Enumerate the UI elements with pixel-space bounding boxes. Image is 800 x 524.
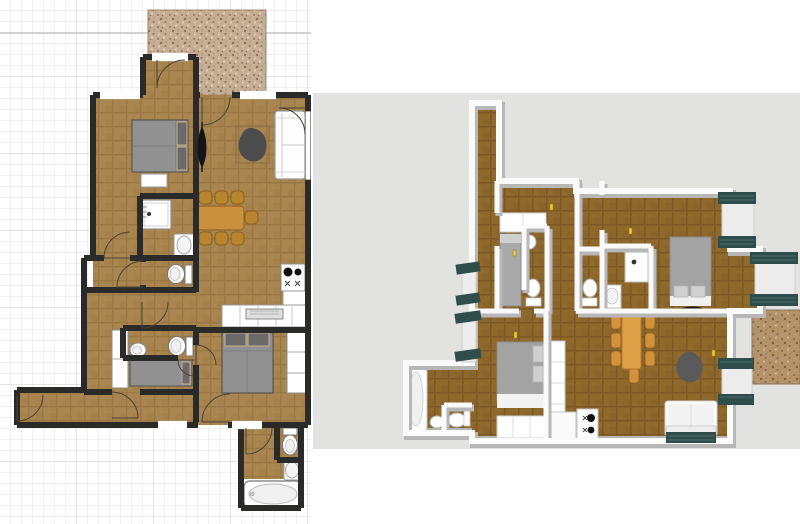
- view-3d-canvas[interactable]: [313, 0, 800, 524]
- window-jut-3d: [750, 252, 798, 306]
- toilet-bathroom[interactable]: [283, 428, 298, 455]
- sofa[interactable]: [275, 111, 305, 179]
- window-bedroom1-3d: [718, 192, 756, 248]
- wardrobe-bedroom-3[interactable]: [287, 331, 306, 393]
- plan-2d-canvas[interactable]: [0, 0, 313, 524]
- bed-single-2[interactable]: [130, 360, 192, 386]
- toilet-wc-2[interactable]: [169, 337, 194, 357]
- bathtub[interactable]: [244, 481, 302, 508]
- shower[interactable]: [141, 200, 171, 229]
- terrace-3d[interactable]: [752, 310, 800, 384]
- toilet-wc-1[interactable]: [168, 265, 193, 285]
- window-living-top-3d: [718, 358, 754, 405]
- bed-double-1-3d[interactable]: [670, 237, 711, 306]
- bidet[interactable]: [130, 343, 146, 357]
- bed-single-2-3d[interactable]: [500, 234, 521, 306]
- dresser-bedroom-1[interactable]: [141, 174, 167, 187]
- wardrobe-bedroom-3-3d[interactable]: [497, 416, 546, 438]
- floorplan-app-window: [0, 0, 800, 524]
- window-living-right-3d: [666, 426, 716, 443]
- washbasin-shower-room[interactable]: [174, 234, 194, 256]
- cooktop[interactable]: [281, 264, 305, 291]
- bed-double-3-3d[interactable]: [497, 342, 544, 408]
- bed-double-1[interactable]: [132, 120, 188, 172]
- bed-double-3[interactable]: [222, 331, 273, 393]
